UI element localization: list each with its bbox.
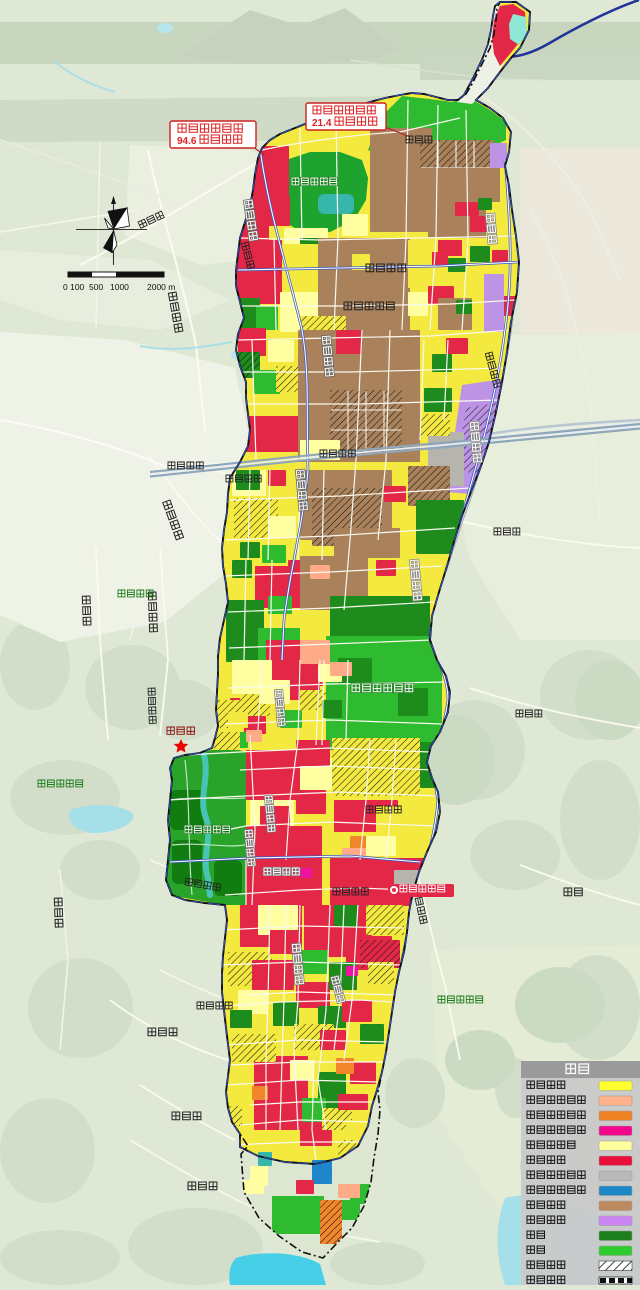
svg-text:1000: 1000 [110,282,129,292]
svg-text:0 100: 0 100 [63,282,85,292]
svg-text:21.4: 21.4 [312,118,332,129]
svg-text:500: 500 [89,282,103,292]
svg-text:2000 m: 2000 m [147,282,175,292]
svg-text:94.6: 94.6 [177,136,197,147]
